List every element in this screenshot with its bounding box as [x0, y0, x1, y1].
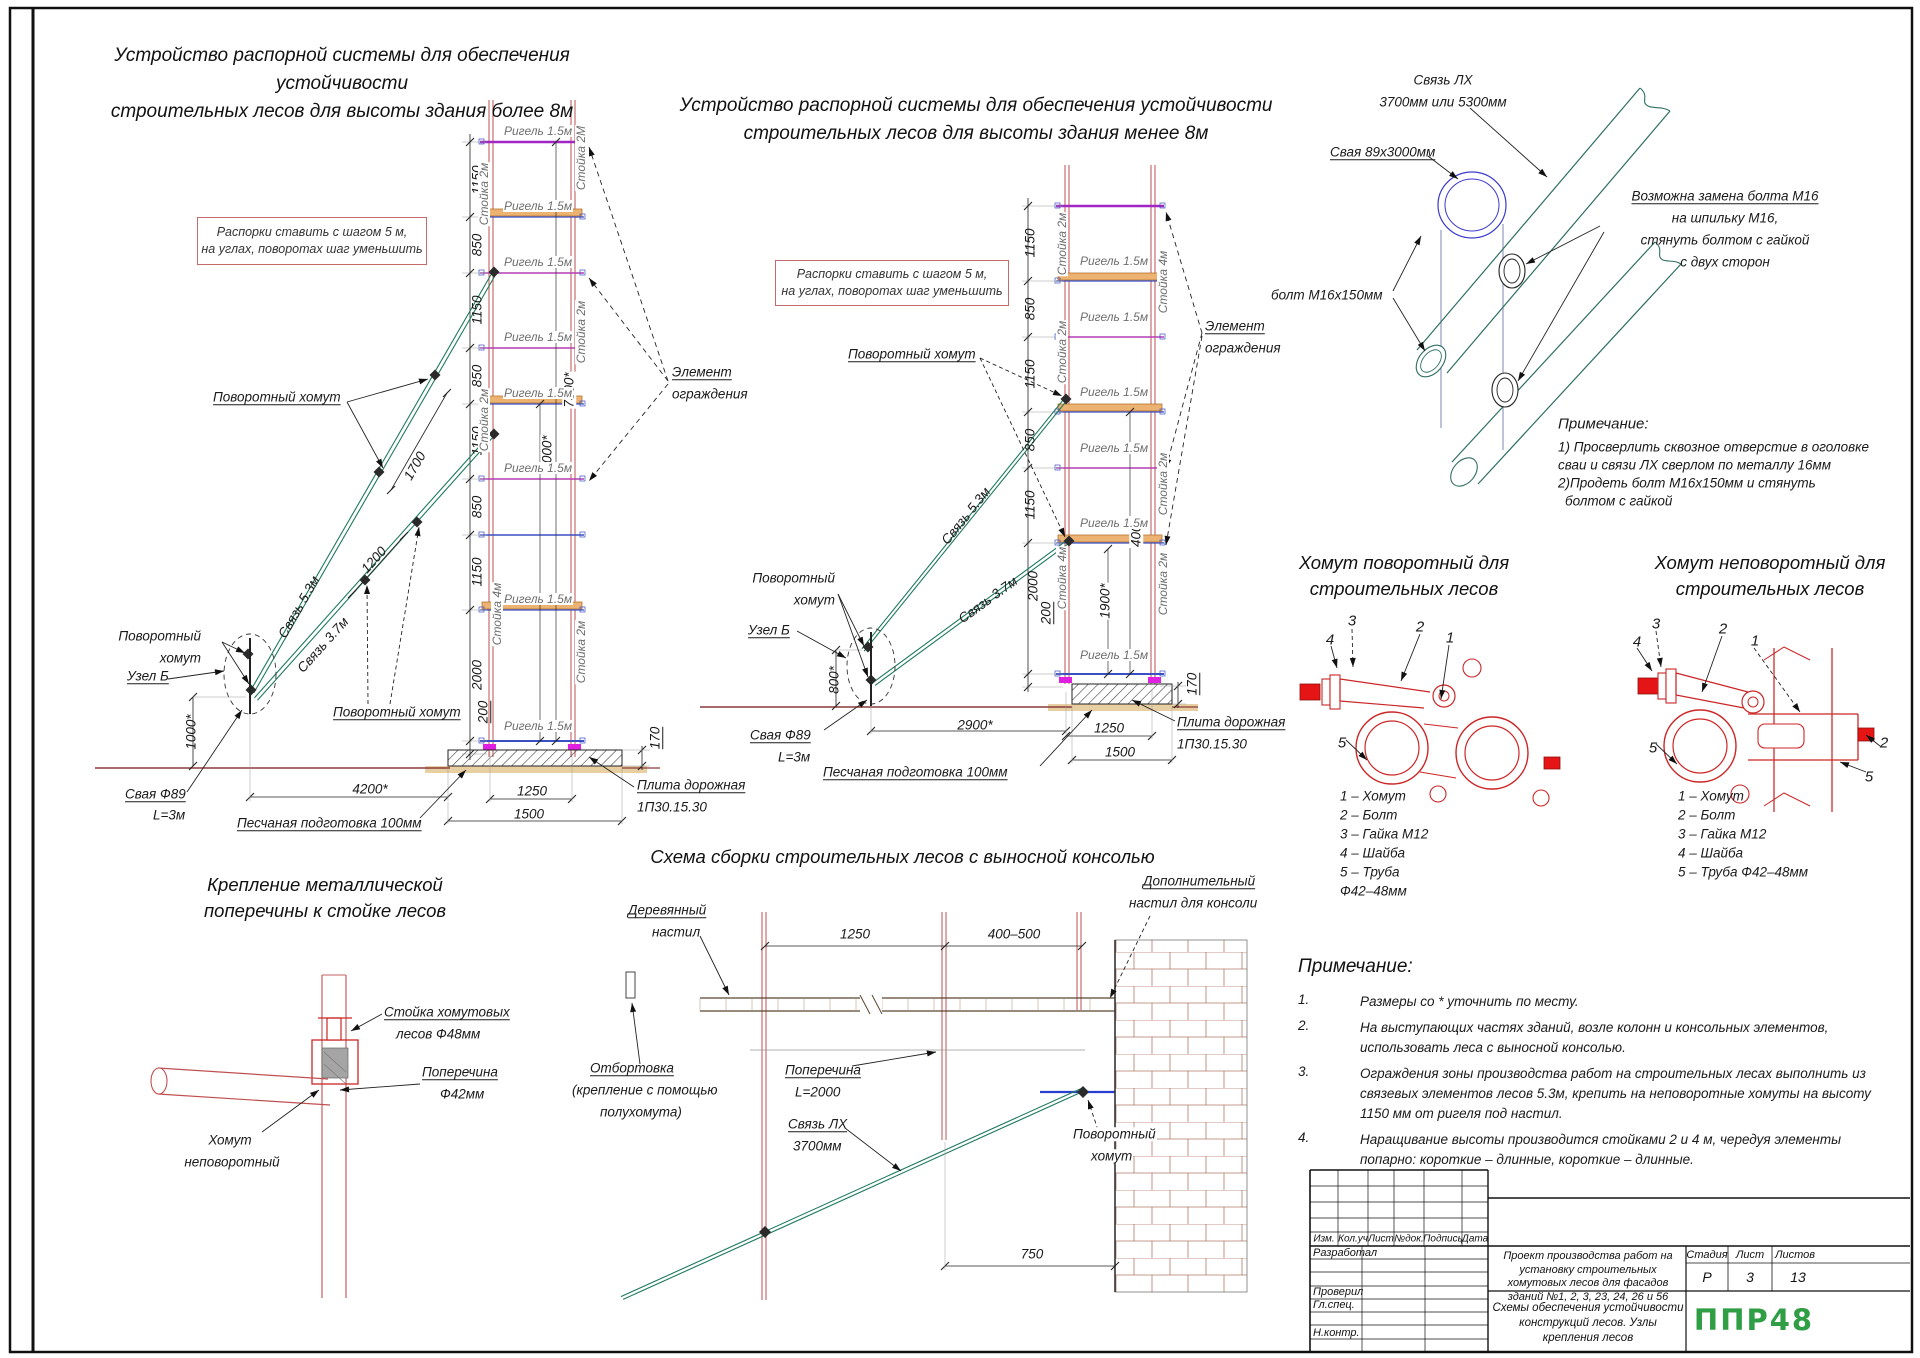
label-p-zamena-4: с двух сторон	[1680, 255, 1770, 269]
label-m-dim-1250: 1250	[1094, 721, 1124, 735]
clamp-right-parts-item: 5 – Труба Ф42–48мм	[1678, 865, 1808, 879]
label-c-left-4: 4	[1326, 633, 1334, 648]
titleblock-stage-value: Р	[1702, 1269, 1711, 1285]
ppr48-logo: ППР48	[1690, 1303, 1818, 1337]
label-l-stoyka-l2: Стойка 2м	[478, 388, 490, 452]
label-l-dim-850-2: 850	[470, 365, 484, 388]
label-m-stoyka-l3: Стойка 4м	[1056, 546, 1068, 610]
clamp-left-title: Хомут поворотный для строительных лесов	[1284, 550, 1524, 602]
label-l-rigel-6: Ригель 1.5м	[503, 462, 573, 474]
titleblock-doc-title: Схемы обеспечения устойчивости конструкц…	[1492, 1301, 1684, 1346]
label-m-callout-povorotny-2b: хомут	[794, 593, 835, 607]
label-m-dim-1150-1: 1150	[1023, 228, 1037, 257]
label-p-note-2: сваи и связи ЛХ сверлом по металлу 16мм	[1558, 458, 1831, 472]
clamp-left-parts-item: 2 – Болт	[1340, 808, 1397, 822]
label-l-stoyka-l3: Стойка 4м	[491, 582, 503, 646]
mid-scheme-title: Устройство распорной системы для обеспеч…	[662, 92, 1290, 148]
note-item: 4.Наращивание высоты производится стойка…	[1298, 1130, 1883, 1170]
label-p-zamena-2: на шпильку М16,	[1672, 211, 1778, 225]
label-m-callout-svaya-a: Свая Ф89	[750, 728, 811, 742]
note-item: 1.Размеры со * уточнить по месту.	[1298, 992, 1883, 1012]
bottom-left-title: Крепление металлической поперечины к сто…	[165, 872, 485, 924]
label-c-right-5b: 5	[1865, 770, 1873, 785]
titleblock-sheets-value: 13	[1790, 1269, 1806, 1285]
label-l-dim-2000: 2000	[470, 660, 484, 690]
left-scheme-note-box: Распорки ставить с шагом 5 м, на углах, …	[197, 217, 427, 265]
label-c-left-3: 3	[1348, 614, 1356, 629]
label-p-svaya: Свая 89х3000мм	[1330, 145, 1435, 159]
label-p-zamena-3: стянуть болтом с гайкой	[1641, 233, 1810, 247]
label-m-stoyka-l2: Стойка 2м	[1056, 320, 1068, 384]
label-c-left-1: 1	[1446, 631, 1454, 646]
label-bl-homut-a: Хомут	[208, 1133, 251, 1147]
label-l-callout-uzel-b: Узел Б	[127, 669, 169, 683]
label-m-rigel-5: Ригель 1.5м	[1079, 517, 1149, 529]
label-bl-stoyka-b: лесов Ф48мм	[396, 1027, 480, 1041]
clamp-right-parts-item: 1 – Хомут	[1678, 789, 1744, 803]
label-cs-otbortovka-b: (крепление с помощью	[572, 1083, 718, 1097]
label-p-note-head: Примечание:	[1558, 417, 1649, 432]
label-c-right-2: 2	[1719, 622, 1727, 637]
notes-list: 1.Размеры со * уточнить по месту.2.На вы…	[1298, 992, 1883, 1176]
label-l-dim-1150-2: 1150	[470, 295, 484, 324]
titleblock-sheet-label: Лист	[1736, 1249, 1764, 1261]
label-m-callout-povorotny-2a: Поворотный	[752, 571, 835, 585]
label-l-dim-850-1: 850	[470, 234, 484, 257]
label-l-dim-200: 200	[476, 701, 490, 724]
label-cs-dim-750: 750	[1021, 1247, 1044, 1261]
label-cs-poperechina-a: Поперечина	[785, 1063, 861, 1077]
clamp-left-parts-item: 3 – Гайка М12	[1340, 827, 1428, 841]
titleblock-sheet-value: 3	[1746, 1269, 1754, 1285]
label-l-callout-plita-a: Плита дорожная	[637, 778, 745, 792]
label-m-rigel-4: Ригель 1.5м	[1079, 442, 1149, 454]
label-l-stoyka-r3: Стойка 2м	[575, 620, 587, 684]
label-bl-poperechina-b: Ф42мм	[440, 1087, 484, 1101]
titleblock-rev-list: Лист	[1368, 1234, 1394, 1245]
label-cs-otbortovka-a: Отбортовка	[590, 1061, 674, 1075]
clamp-right-parts-item: 2 – Болт	[1678, 808, 1735, 822]
label-cs-dop-a: Дополнительный	[1142, 874, 1256, 888]
titleblock-project: Проект производства работ на установку с…	[1492, 1250, 1684, 1304]
label-l-callout-peschanaya: Песчаная подготовка 100мм	[237, 816, 422, 830]
clamp-left-parts-item: 5 – Труба	[1340, 865, 1400, 879]
label-p-note-3: 2)Продеть болт М16х150мм и стянуть	[1558, 476, 1816, 490]
label-l-rigel-8: Ригель 1.5м	[503, 720, 573, 732]
label-p-svyaz-lh-a: Связь ЛХ	[1413, 73, 1472, 87]
label-l-rigel-7: Ригель 1.5м	[503, 593, 573, 605]
label-m-callout-uzel-b: Узел Б	[748, 623, 790, 637]
label-m-callout-peschanaya: Песчаная подготовка 100мм	[823, 765, 1008, 779]
clamp-right-parts-item: 3 – Гайка М12	[1678, 827, 1766, 841]
label-l-dim-170: 170	[648, 727, 662, 750]
label-l-rigel-4: Ригель 1.5м	[503, 331, 573, 343]
label-m-rigel-1: Ригель 1.5м	[1079, 255, 1149, 267]
label-m-dim-2000: 2000	[1026, 571, 1040, 601]
label-cs-dop-b: настил для консоли	[1128, 896, 1258, 910]
label-cs-nastil-a: Деревянный	[628, 903, 706, 917]
label-m-dim-850-2: 850	[1023, 429, 1037, 452]
left-scheme-title: Устройство распорной системы для обеспеч…	[62, 42, 622, 126]
label-l-dim-1150-4: 1150	[470, 557, 484, 586]
label-l-stoyka-r1: Стойка 2М	[575, 125, 587, 191]
label-cs-dim-400500: 400–500	[988, 927, 1041, 941]
label-m-callout-plita-b: 1П30.15.30	[1177, 737, 1247, 751]
label-l-rigel-1: Ригель 1.5м	[503, 125, 573, 137]
label-m-callout-plita-a: Плита дорожная	[1177, 715, 1285, 729]
note-item: 2.На выступающих частях зданий, возле ко…	[1298, 1018, 1883, 1058]
label-c-left-5: 5	[1338, 736, 1346, 751]
titleblock-staff-glspets: Гл.спец.	[1313, 1299, 1355, 1311]
label-l-dim-850-3: 850	[470, 496, 484, 519]
clamp-left-parts-item: 1 – Хомут	[1340, 789, 1406, 803]
label-l-callout-svaya-b: L=3м	[153, 808, 185, 822]
label-m-callout-povorotny-1: Поворотный хомут	[848, 347, 976, 361]
label-l-rigel-3: Ригель 1.5м	[503, 256, 573, 268]
label-p-note-4: болтом с гайкой	[1565, 494, 1672, 508]
label-m-stoyka-r2: Стойка 2м	[1157, 452, 1169, 516]
titleblock-rev-izm: Изм.	[1313, 1234, 1334, 1245]
label-l-callout-povorotny-2a: Поворотный	[118, 629, 201, 643]
clamp-right-title: Хомут неповоротный для строительных лесо…	[1650, 550, 1890, 602]
label-m-dim-170: 170	[1185, 673, 1199, 696]
label-m-stoyka-r1: Стойка 4м	[1157, 250, 1169, 314]
label-l-callout-povorotny-2b: хомут	[160, 651, 201, 665]
label-p-zamena-1: Возможна замена болта М16	[1631, 189, 1818, 203]
titleblock-rev-koluch: Кол.уч	[1338, 1234, 1368, 1245]
label-bl-stoyka-a: Стойка хомутовых	[384, 1005, 510, 1019]
titleblock-stage-label: Стадия	[1686, 1249, 1727, 1261]
drawing-sheet: 115085011508501150850115020002007500*400…	[0, 0, 1920, 1358]
titleblock-staff-razrabotal: Разработал	[1313, 1247, 1377, 1259]
label-p-bolt: болт М16х150мм	[1271, 288, 1382, 302]
label-m-rigel-6: Ригель 1.5м	[1079, 649, 1149, 661]
label-c-right-3: 3	[1652, 617, 1660, 632]
clamp-left-parts-item: Ф42–48мм	[1340, 884, 1407, 898]
label-l-callout-povorotny-1: Поворотный хомут	[213, 390, 341, 404]
label-c-right-4: 4	[1633, 635, 1641, 650]
titleblock-rev-data: Дата	[1462, 1234, 1488, 1245]
label-cs-svyaz-b: 3700мм	[793, 1139, 842, 1153]
label-cs-svyaz-a: Связь ЛХ	[788, 1117, 847, 1131]
label-m-rigel-3: Ригель 1.5м	[1079, 386, 1149, 398]
label-l-callout-povorotny-3: Поворотный хомут	[333, 705, 461, 719]
titleblock-rev-podpis: Подпись	[1423, 1234, 1463, 1245]
label-m-dim-850-1: 850	[1023, 298, 1037, 321]
label-p-note-1: 1) Просверлить сквозное отверстие в огол…	[1558, 440, 1869, 454]
label-m-dim-1150-3: 1150	[1023, 490, 1037, 519]
label-l-dim-4200: 4200*	[352, 782, 387, 796]
label-l-dim-1000: 1000*	[184, 714, 198, 749]
label-m-callout-element-b: ограждения	[1205, 341, 1281, 355]
label-m-callout-element-a: Элемент	[1205, 319, 1265, 333]
label-m-callout-svaya-b: L=3м	[778, 750, 810, 764]
label-l-dim-1500: 1500	[514, 807, 544, 821]
label-l-callout-plita-b: 1П30.15.30	[637, 800, 707, 814]
label-l-callout-element-b: ограждения	[672, 387, 748, 401]
label-m-stoyka-r3: Стойка 2м	[1157, 552, 1169, 616]
notes-heading: Примечание:	[1298, 956, 1413, 978]
label-p-svyaz-lh-b: 3700мм или 5300мм	[1379, 95, 1506, 109]
clamp-left-parts-item: 4 – Шайба	[1340, 846, 1405, 860]
label-l-callout-element-a: Элемент	[672, 365, 732, 379]
label-m-dim-1900: 1900*	[1098, 582, 1112, 619]
label-c-right-5: 5	[1649, 741, 1657, 756]
titleblock-rev-ndok: №док.	[1394, 1234, 1423, 1245]
clamp-right-parts-item: 4 – Шайба	[1678, 846, 1743, 860]
label-m-stoyka-l1: Стойка 2м	[1056, 212, 1068, 276]
titleblock-staff-proveril: Проверил	[1313, 1286, 1363, 1298]
label-m-dim-800: 800*	[827, 666, 841, 694]
label-cs-dim-1250: 1250	[840, 927, 870, 941]
note-item: 3.Ограждения зоны производства работ на …	[1298, 1064, 1883, 1124]
label-m-rigel-2: Ригель 1.5м	[1079, 311, 1149, 323]
label-c-right-1: 1	[1751, 634, 1759, 649]
label-cs-otbortovka-c: полухомута)	[600, 1105, 682, 1119]
label-l-rigel-5: Ригель 1.5м	[503, 387, 573, 399]
titleblock-sheets-label: Листов	[1775, 1249, 1815, 1261]
label-l-dim-1250: 1250	[517, 784, 547, 798]
label-m-dim-200: 200	[1039, 602, 1053, 625]
label-l-rigel-2: Ригель 1.5м	[503, 200, 573, 212]
label-c-right-2b: 2	[1880, 736, 1888, 751]
label-c-left-2: 2	[1416, 620, 1424, 635]
label-l-callout-svaya-a: Свая Ф89	[125, 787, 186, 801]
label-m-dim-2900: 2900*	[957, 718, 992, 732]
label-m-dim-1150-2: 1150	[1023, 359, 1037, 388]
label-l-stoyka-r2: Стойка 2м	[575, 300, 587, 364]
label-bl-poperechina-a: Поперечина	[422, 1065, 498, 1079]
label-cs-poperechina-b: L=2000	[795, 1085, 840, 1099]
label-cs-povorotny-b: хомут	[1090, 1149, 1133, 1163]
label-m-dim-1500: 1500	[1105, 745, 1135, 759]
label-l-stoyka-l1: Стойка 2м	[478, 162, 490, 226]
console-scheme-title: Схема сборки строительных лесов с выносн…	[630, 844, 1175, 870]
mid-scheme-note-box: Распорки ставить с шагом 5 м, на углах, …	[775, 260, 1009, 306]
label-bl-homut-b: неповоротный	[184, 1155, 279, 1169]
label-cs-nastil-b: настил	[652, 925, 700, 939]
titleblock-staff-nkontr: Н.контр.	[1313, 1327, 1360, 1339]
label-cs-povorotny-a: Поворотный	[1072, 1127, 1157, 1141]
